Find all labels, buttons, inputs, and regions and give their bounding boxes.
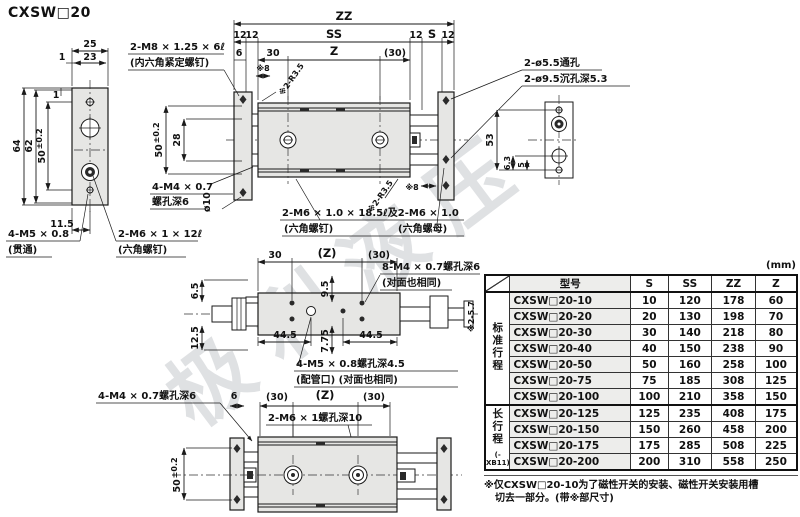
dim-Z: Z xyxy=(330,44,338,58)
table-row: CXSW□20-150 150 260 458 200 xyxy=(485,422,797,438)
callout-m8-note: (内六角紧定螺钉) xyxy=(130,56,209,69)
group-label-standard-stroke: 标准行程 xyxy=(485,292,510,405)
dim-12: 12 xyxy=(441,30,454,41)
dim-12: 12 xyxy=(245,30,258,41)
dim-ZZ: ZZ xyxy=(336,9,353,23)
table-row: CXSW□20-75 75 185 308 125 xyxy=(485,373,797,389)
callout-2m6-12: 2-M6 × 1 × 12ℓ xyxy=(118,229,203,240)
guide-rod xyxy=(410,154,438,165)
dim-SS: SS xyxy=(326,27,342,41)
model-cell: CXSW□20-20 xyxy=(510,309,631,325)
dim-44-5: 44.5 xyxy=(273,330,296,341)
table-row: CXSW□20-30 30 140 218 80 xyxy=(485,325,797,341)
dim-30p: (30) xyxy=(363,392,385,403)
s-cell: 125 xyxy=(631,405,668,422)
dim-star8: ※8 xyxy=(256,63,270,73)
dim-7-75: 7.75 xyxy=(320,329,331,352)
table-row: CXSW□20-20 20 130 198 70 xyxy=(485,309,797,325)
dim-62: 62 xyxy=(24,139,35,152)
s-cell: 20 xyxy=(631,309,668,325)
z-cell: 70 xyxy=(755,309,797,325)
dim-Zp: (Z) xyxy=(316,388,335,402)
model-cell: CXSW□20-50 xyxy=(510,357,631,373)
dim-star-r35: ※2-R3.5 xyxy=(276,61,306,97)
dim-12: 12 xyxy=(409,30,422,41)
zz-cell: 238 xyxy=(712,341,756,357)
callout-2m6-depth10: 2-M6 × 1螺孔深10 xyxy=(268,411,362,424)
model-cell: CXSW□20-75 xyxy=(510,373,631,389)
s-cell: 100 xyxy=(631,389,668,406)
callout-counterbore: 2-ø9.5沉孔深5.3 xyxy=(524,72,607,85)
ss-cell: 150 xyxy=(668,341,712,357)
table-row: 长行程(-XB11) CXSW□20-125 125 235 408 175 xyxy=(485,405,797,422)
zz-cell: 258 xyxy=(712,357,756,373)
model-cell: CXSW□20-175 xyxy=(510,438,631,454)
zz-cell: 198 xyxy=(712,309,756,325)
s-cell: 75 xyxy=(631,373,668,389)
col-header-z: Z xyxy=(755,275,797,292)
dim-30p: (30) xyxy=(368,250,390,261)
s-cell: 150 xyxy=(631,422,668,438)
dim-64: 64 xyxy=(12,139,23,153)
z-cell: 125 xyxy=(755,373,797,389)
zz-cell: 458 xyxy=(712,422,756,438)
z-cell: 100 xyxy=(755,357,797,373)
dimension-table-panel: (mm) 型号 S SS ZZ Z 标准行程 CXSW□20-10 10 120… xyxy=(484,260,798,505)
page-title: CXSW□20 xyxy=(8,5,91,21)
z-cell: 225 xyxy=(755,438,797,454)
callout-hex-bolt: (六角螺钉) xyxy=(284,222,333,235)
dim-phi10: ø10 xyxy=(202,192,213,212)
callout-port-note: (配管口) (对面也相同) xyxy=(296,373,398,386)
datasheet-page: CXSW□20 极利液压 25 23 1 1 64 62 50±0.2 xyxy=(0,0,800,517)
z-cell: 250 xyxy=(755,454,797,471)
table-row: CXSW□20-200 200 310 558 250 xyxy=(485,454,797,471)
z-cell: 90 xyxy=(755,341,797,357)
note-line-1: ※仅CXSW□20-10为了磁性开关的安装、磁性开关安装用槽 xyxy=(484,479,798,492)
dim-6-5: 6.5 xyxy=(190,283,201,300)
s-cell: 30 xyxy=(631,325,668,341)
dim-53: 53 xyxy=(485,133,496,146)
callout-4m4-depth: 螺孔深6 xyxy=(152,195,189,208)
ss-cell: 235 xyxy=(668,405,712,422)
dim-5: 5 xyxy=(517,162,526,168)
model-cell: CXSW□20-40 xyxy=(510,341,631,357)
ss-cell: 260 xyxy=(668,422,712,438)
model-cell: CXSW□20-125 xyxy=(510,405,631,422)
guide-rod xyxy=(397,453,437,463)
zz-cell: 508 xyxy=(712,438,756,454)
ss-cell: 285 xyxy=(668,438,712,454)
z-cell: 80 xyxy=(755,325,797,341)
callout-m8: 2-M8 × 1.25 × 6ℓ xyxy=(130,42,225,53)
col-header-ss: SS xyxy=(668,275,712,292)
callout-through-hole: 2-ø5.5通孔 xyxy=(524,56,580,69)
dim-25: 25 xyxy=(83,39,96,50)
ss-cell: 185 xyxy=(668,373,712,389)
view-front-bracket: 25 23 1 1 64 62 50±0.2 11 xyxy=(6,39,203,257)
callout-port-thread: 4-M5 × 0.8螺孔深4.5 xyxy=(296,357,405,370)
ss-cell: 210 xyxy=(668,389,712,406)
dim-1-v: 1 xyxy=(53,90,60,101)
dim-S: S xyxy=(428,27,436,41)
table-row: CXSW□20-175 175 285 508 225 xyxy=(485,438,797,454)
zz-cell: 558 xyxy=(712,454,756,471)
s-cell: 10 xyxy=(631,292,668,309)
col-header-zz: ZZ xyxy=(712,275,756,292)
dim-30p: (30) xyxy=(384,48,406,59)
dim-50-tol: 50±0.2 xyxy=(35,128,48,163)
unit-label: (mm) xyxy=(484,260,798,274)
z-cell: 60 xyxy=(755,292,797,309)
dim-9-5: 9.5 xyxy=(320,281,331,298)
cylinder-body-bottom xyxy=(258,437,397,512)
rod-nut xyxy=(232,298,246,330)
z-cell: 150 xyxy=(755,389,797,406)
s-cell: 50 xyxy=(631,357,668,373)
table-note: ※仅CXSW□20-10为了磁性开关的安装、磁性开关安装用槽 切去一部分。(带※… xyxy=(484,475,798,505)
callout-4m5-note: (贯通) xyxy=(8,244,37,256)
dim-star8: ※8 xyxy=(405,182,419,192)
dim-star-2-5-7: ※2-5.7 xyxy=(466,301,476,332)
callout-4m4-bottom: 4-M4 × 0.7螺孔深6 xyxy=(98,389,196,402)
guide-rod xyxy=(410,115,438,126)
model-cell: CXSW□20-10 xyxy=(510,292,631,309)
callout-8m4-note: (对面也相同) xyxy=(382,276,441,289)
callout-8m4: 8-M4 × 0.7螺孔深6 xyxy=(382,260,480,273)
dim-23: 23 xyxy=(83,52,96,63)
model-cell: CXSW□20-150 xyxy=(510,422,631,438)
ss-cell: 310 xyxy=(668,454,712,471)
dim-1-h: 1 xyxy=(59,52,66,63)
model-cell: CXSW□20-30 xyxy=(510,325,631,341)
z-cell: 200 xyxy=(755,422,797,438)
dim-28: 28 xyxy=(172,133,183,147)
dim-Zp: (Z) xyxy=(318,246,337,260)
dim-50-tol: 50±0.2 xyxy=(170,457,183,492)
ss-cell: 160 xyxy=(668,357,712,373)
table-row: 标准行程 CXSW□20-10 10 120 178 60 xyxy=(485,292,797,309)
callout-4m4: 4-M4 × 0.7 xyxy=(152,182,213,193)
left-flange xyxy=(234,92,252,200)
table-corner-cell xyxy=(485,275,510,292)
zz-cell: 408 xyxy=(712,405,756,422)
dim-30: 30 xyxy=(268,250,282,261)
ss-cell: 140 xyxy=(668,325,712,341)
zz-cell: 218 xyxy=(712,325,756,341)
dim-30: 30 xyxy=(266,48,280,59)
piston-rod xyxy=(212,306,232,322)
zz-cell: 358 xyxy=(712,389,756,406)
dimension-table: 型号 S SS ZZ Z 标准行程 CXSW□20-10 10 120 178 … xyxy=(484,274,798,471)
zz-cell: 308 xyxy=(712,373,756,389)
model-cell: CXSW□20-100 xyxy=(510,389,631,406)
table-row: CXSW□20-100 100 210 358 150 xyxy=(485,389,797,406)
z-cell: 175 xyxy=(755,405,797,422)
dim-6: 6 xyxy=(231,391,238,402)
s-cell: 175 xyxy=(631,438,668,454)
dim-44-5: 44.5 xyxy=(359,330,382,341)
piston-rod xyxy=(400,307,430,321)
col-header-s: S xyxy=(631,275,668,292)
s-cell: 40 xyxy=(631,341,668,357)
s-cell: 200 xyxy=(631,454,668,471)
dim-6-3: 6.3 xyxy=(503,156,512,170)
table-row: CXSW□20-50 50 160 258 100 xyxy=(485,357,797,373)
guide-rod xyxy=(397,489,437,499)
dim-6: 6 xyxy=(236,48,243,59)
view-bottom: 4-M4 × 0.7螺孔深6 6 (30) (Z) (30) 2-M6 × 1螺… xyxy=(96,388,462,512)
col-header-model: 型号 xyxy=(510,275,631,292)
ss-cell: 120 xyxy=(668,292,712,309)
dim-50-tol: 50±0.2 xyxy=(152,122,165,157)
dim-30p: (30) xyxy=(266,392,288,403)
note-line-2: 切去一部分。(带※部尺寸) xyxy=(484,492,798,505)
ss-cell: 130 xyxy=(668,309,712,325)
callout-4m5: 4-M5 × 0.8 xyxy=(8,229,69,240)
group-label-long-stroke: 长行程(-XB11) xyxy=(485,405,510,470)
callout-hex-nut: (六角螺母) xyxy=(398,222,447,235)
model-cell: CXSW□20-200 xyxy=(510,454,631,471)
piping-port xyxy=(307,307,316,316)
zz-cell: 178 xyxy=(712,292,756,309)
dim-12-5: 12.5 xyxy=(190,326,201,349)
cylinder-body-side xyxy=(258,293,400,335)
table-header-row: 型号 S SS ZZ Z xyxy=(485,275,797,292)
table-row: CXSW□20-40 40 150 238 90 xyxy=(485,341,797,357)
callout-2m6-12-note: (六角螺钉) xyxy=(118,243,167,256)
